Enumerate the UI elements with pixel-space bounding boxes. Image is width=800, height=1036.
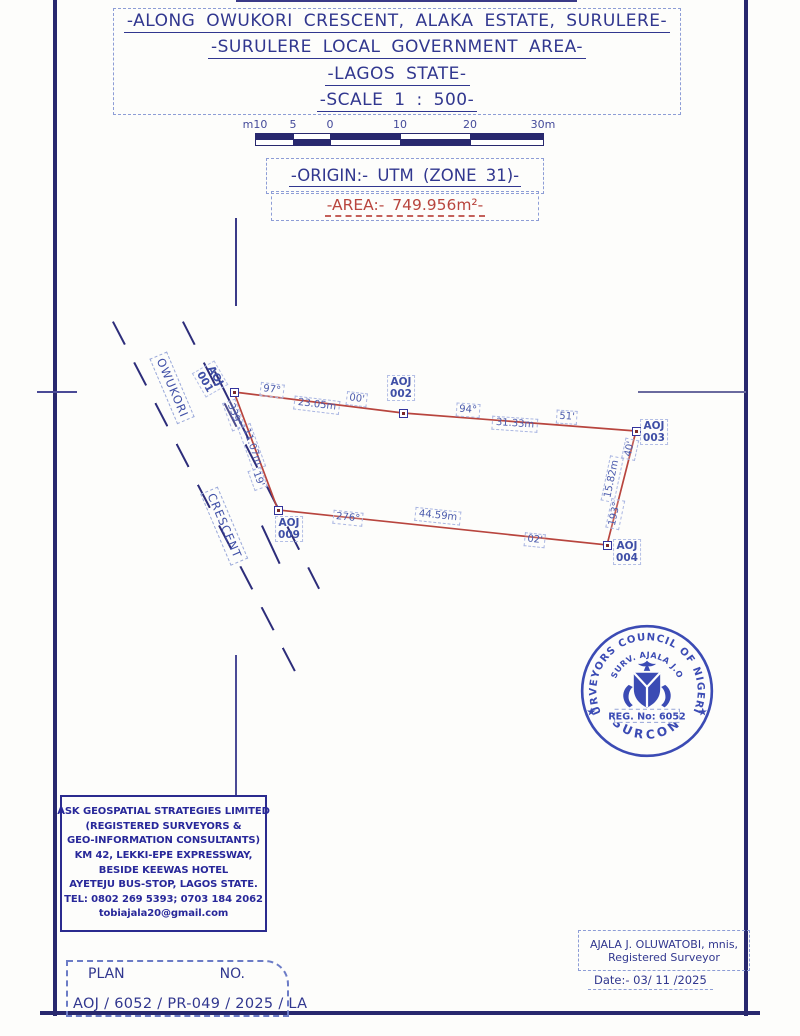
surcon-seal-stamp: SURVEYORS COUNCIL OF NIGERIA SURCON SURV… — [571, 615, 723, 767]
survey-plan-page: -ALONG OWUKORI CRESCENT, ALAKA ESTATE, S… — [0, 0, 800, 1036]
firm-phone: TEL: 0802 269 5393; 0703 184 2062 — [64, 893, 263, 908]
plan-label: PLAN — [88, 966, 125, 982]
beacon-center-dot — [606, 544, 609, 547]
plan-number-value: AOJ / 6052 / PR-049 / 2025 / LA — [68, 996, 287, 1015]
plan-number-box: PLAN NO. AOJ / 6052 / PR-049 / 2025 / LA — [66, 960, 289, 1017]
firm-desc-1: (REGISTERED SURVEYORS & — [86, 820, 242, 835]
survey-beacon-marker — [603, 541, 612, 550]
beacon-center-dot — [233, 391, 236, 394]
beacon-center-dot — [635, 430, 638, 433]
beacon-center-dot — [402, 412, 405, 415]
nigeria-coat-of-arms-icon — [623, 661, 671, 708]
beacon-id-label: AOJ 002 — [387, 375, 415, 401]
plan-number-header-row: PLAN NO. — [68, 962, 287, 982]
bearing-label: 02' — [524, 532, 547, 548]
firm-desc-2: GEO-INFORMATION CONSULTANTS) — [67, 834, 260, 849]
seal-reg-number: REG. No: 6052 — [608, 711, 685, 722]
survey-date: Date:- 03/ 11 /2025 — [588, 972, 713, 990]
survey-beacon-marker — [399, 409, 408, 418]
surveyor-name: AJALA J. OLUWATOBI, mnis, — [590, 938, 738, 951]
seal-star-left-icon: ★ — [586, 705, 596, 718]
survey-beacon-marker — [274, 506, 283, 515]
no-label: NO. — [220, 966, 245, 982]
beacon-id-label: AOJ 003 — [640, 419, 668, 445]
firm-address-3: AYETEJU BUS-STOP, LAGOS STATE. — [69, 878, 257, 893]
beacon-id-label: AOJ 009 — [275, 516, 303, 542]
beacon-id-label: AOJ 004 — [613, 539, 641, 565]
bearing-label: 94° — [456, 402, 481, 417]
firm-info-box: ASK GEOSPATIAL STRATEGIES LIMITED (REGIS… — [60, 795, 267, 932]
firm-email: tobiajala20@gmail.com — [99, 907, 228, 922]
firm-address-2: BESIDE KEEWAS HOTEL — [99, 864, 228, 879]
surveyor-name-box: AJALA J. OLUWATOBI, mnis, Registered Sur… — [578, 930, 750, 971]
survey-beacon-marker — [230, 388, 239, 397]
firm-name: ASK GEOSPATIAL STRATEGIES LIMITED — [57, 805, 270, 820]
firm-address-1: KM 42, LEKKI-EPE EXPRESSWAY, — [75, 849, 253, 864]
bearing-label: 51' — [556, 410, 578, 425]
seal-star-right-icon: ★ — [698, 705, 708, 718]
bearing-label: 00' — [346, 391, 369, 407]
beacon-center-dot — [277, 509, 280, 512]
bearing-label: 97° — [259, 382, 284, 398]
surveyor-title: Registered Surveyor — [608, 951, 720, 964]
